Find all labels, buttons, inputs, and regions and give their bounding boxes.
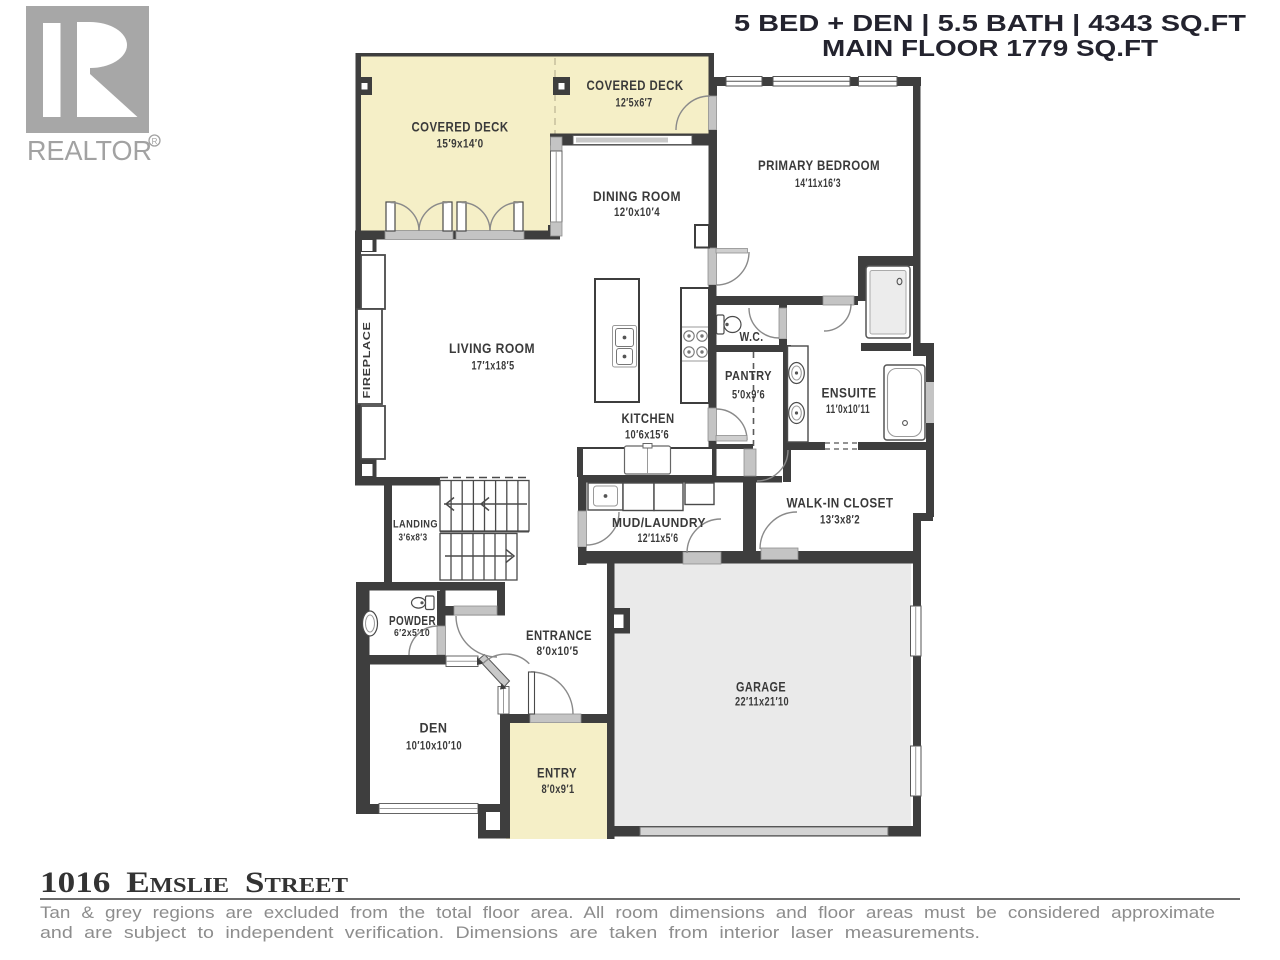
svg-text:8′0x9′1: 8′0x9′1 — [542, 782, 575, 796]
svg-text:MAIN FLOOR 1779 SQ.FT: MAIN FLOOR 1779 SQ.FT — [822, 35, 1159, 61]
svg-text:ENTRY: ENTRY — [537, 766, 577, 781]
svg-text:R: R — [152, 137, 158, 146]
svg-text:FIREPLACE: FIREPLACE — [361, 322, 373, 399]
svg-text:DEN: DEN — [420, 721, 448, 736]
svg-text:PRIMARY BEDROOM: PRIMARY BEDROOM — [758, 157, 880, 173]
svg-text:and are subject to independent: and are subject to independent verificat… — [40, 924, 980, 942]
svg-text:10′10x10′10: 10′10x10′10 — [406, 739, 462, 753]
svg-text:5′0x9′6: 5′0x9′6 — [732, 390, 765, 402]
svg-text:5 BED + DEN | 5.5 BATH | 4343: 5 BED + DEN | 5.5 BATH | 4343 SQ.FT — [734, 10, 1247, 36]
svg-text:12′11x5′6: 12′11x5′6 — [638, 533, 679, 545]
svg-text:8′0x10′5: 8′0x10′5 — [537, 644, 579, 658]
svg-text:15′9x14′0: 15′9x14′0 — [437, 137, 484, 151]
svg-text:LANDING: LANDING — [393, 519, 438, 531]
svg-text:MUD/LAUNDRY: MUD/LAUNDRY — [612, 515, 706, 530]
svg-text:COVERED DECK: COVERED DECK — [587, 78, 684, 93]
svg-text:KITCHEN: KITCHEN — [622, 411, 675, 426]
svg-text:DINING ROOM: DINING ROOM — [593, 189, 681, 204]
svg-text:POWDER: POWDER — [389, 614, 436, 628]
svg-text:ENSUITE: ENSUITE — [822, 386, 877, 401]
svg-text:17′1x18′5: 17′1x18′5 — [472, 359, 515, 373]
svg-text:14′11x16′3: 14′11x16′3 — [795, 176, 841, 190]
svg-text:PANTRY: PANTRY — [725, 369, 772, 383]
svg-text:13′3x8′2: 13′3x8′2 — [820, 513, 860, 527]
svg-text:WALK-IN CLOSET: WALK-IN CLOSET — [787, 496, 894, 511]
svg-text:12′0x10′4: 12′0x10′4 — [614, 205, 660, 219]
svg-text:Tan & grey regions are exclude: Tan & grey regions are excluded from the… — [40, 904, 1215, 922]
svg-text:22′11x21′10: 22′11x21′10 — [735, 695, 789, 709]
svg-text:COVERED DECK: COVERED DECK — [412, 120, 509, 135]
svg-text:REALTOR: REALTOR — [27, 135, 152, 166]
svg-text:W.C.: W.C. — [740, 330, 764, 344]
svg-text:11′0x10′11: 11′0x10′11 — [826, 402, 870, 416]
svg-text:3′6x8′3: 3′6x8′3 — [399, 532, 428, 544]
svg-text:LIVING ROOM: LIVING ROOM — [449, 340, 535, 356]
svg-text:6′2x5′10: 6′2x5′10 — [394, 627, 430, 639]
svg-text:GARAGE: GARAGE — [736, 679, 786, 695]
svg-text:1016 Emslie Street: 1016 Emslie Street — [40, 866, 348, 899]
svg-text:12′5x6′7: 12′5x6′7 — [616, 96, 653, 110]
svg-text:ENTRANCE: ENTRANCE — [526, 628, 592, 643]
svg-text:10′6x15′6: 10′6x15′6 — [625, 428, 669, 442]
